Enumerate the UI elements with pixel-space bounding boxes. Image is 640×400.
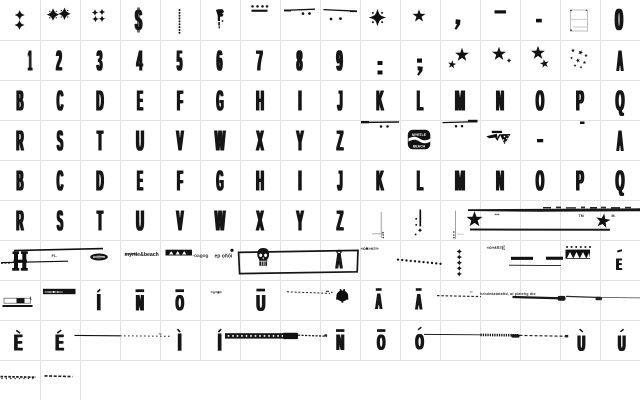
svg-text:M: M [456,164,466,197]
svg-text:N: N [497,164,505,197]
svg-text:D: D [97,84,104,117]
svg-text:V: V [177,204,184,237]
svg-text:O: O [177,290,185,316]
svg-text:H: H [257,84,265,117]
svg-text:U: U [619,330,626,356]
svg-text:≈o≈■≈: ≈o≈■≈ [211,290,223,295]
svg-text:W: W [216,204,226,237]
svg-text:·s·: ·s· [158,332,162,336]
svg-text:N: N [337,330,345,356]
svg-text:E: E [617,255,622,274]
svg-text:3: 3 [98,44,104,77]
svg-text:7: 7 [257,44,263,77]
svg-text:T: T [98,125,104,157]
svg-text:F: F [178,85,184,117]
svg-text:I: I [299,84,302,117]
svg-text:4: 4 [137,44,143,77]
svg-text:L: L [418,84,424,117]
svg-text:«o»±X≡((: «o»±X≡(( [487,245,506,250]
svg-text:C: C [58,165,64,198]
svg-text:S: S [58,205,64,237]
svg-text:J: J [338,165,343,197]
svg-text:T: T [98,205,104,237]
svg-text:A: A [618,124,624,158]
svg-text:hehdedatatattd, at platehg dte: hehdedatatattd, at platehg dte [480,292,536,296]
svg-text:ep oñôì: ep oñôì [215,254,233,260]
svg-text:K: K [377,164,384,197]
svg-text:-oagog: -oagog [193,254,209,259]
svg-text:0: 0 [616,3,624,37]
svg-text:P: P [577,164,585,197]
svg-text:I: I [299,164,302,197]
svg-text:O: O [378,329,386,355]
svg-text:Y: Y [297,204,304,237]
svg-text:A: A [417,290,423,315]
svg-text:O: O [416,329,424,355]
svg-text:C: C [58,85,64,118]
svg-text:TM: TM [579,214,584,218]
svg-text:5: 5 [178,45,183,77]
svg-text:Z: Z [338,124,344,157]
svg-text:A: A [377,289,383,314]
svg-text:F: F [178,165,184,197]
svg-text:9: 9 [337,44,343,77]
svg-text:«o■»±≡≈·: «o■»±≡≈· [361,246,380,251]
svg-text:H: H [257,164,265,197]
svg-text:B: B [18,85,25,117]
svg-text:1: 1 [29,46,33,78]
svg-text:M.: M. [612,214,616,218]
svg-text:B: B [18,165,25,197]
svg-text:Y: Y [297,124,304,157]
svg-text:R: R [17,124,24,157]
svg-text:R: R [17,204,24,237]
svg-text:$: $ [136,2,143,36]
svg-text:X: X [257,124,264,157]
svg-text:MYRTLE: MYRTLE [412,133,427,137]
svg-text:≈≈o≈■≈o≈≈: ≈≈o≈■≈o≈≈ [45,290,63,294]
svg-text:Q: Q [617,164,626,197]
svg-text:J: J [338,85,343,117]
svg-text:K: K [377,84,384,117]
svg-text:V: V [177,124,184,157]
svg-text:Q: Q [617,84,626,117]
svg-text:P: P [577,84,585,117]
svg-text:M: M [456,84,466,117]
svg-text:L: L [418,164,424,197]
svg-text:N: N [497,84,505,117]
svg-text:Z: Z [338,204,344,237]
svg-text:S: S [58,125,64,157]
svg-text:6: 6 [218,44,224,77]
svg-text:D: D [97,164,104,197]
svg-text:U: U [579,330,586,356]
svg-text:G: G [217,85,224,117]
svg-text:A: A [618,44,624,78]
svg-text:U: U [137,204,145,237]
svg-text:X: X [257,204,264,237]
svg-text:G: G [217,165,224,197]
svg-text:O: O [537,164,545,197]
svg-text:FL.: FL. [52,253,58,258]
svg-text:2: 2 [57,44,63,77]
svg-text:E: E [138,85,144,118]
svg-text:N: N [137,290,145,316]
svg-text:»≈≠≈«: »≈≠≈« [125,251,138,256]
svg-text:U: U [137,124,145,157]
svg-text:E: E [138,165,144,198]
svg-text:***: *** [495,212,500,217]
svg-text:O: O [537,84,545,117]
svg-text:8: 8 [298,44,304,77]
svg-text:W: W [216,124,226,157]
svg-text:BEACH: BEACH [413,145,426,149]
svg-text:U: U [257,290,266,316]
